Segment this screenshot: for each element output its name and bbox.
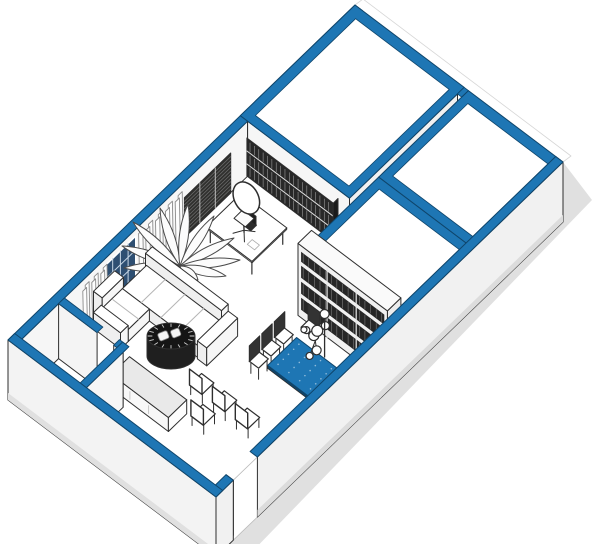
table-dot bbox=[304, 375, 306, 377]
table-dot bbox=[298, 343, 300, 345]
isometric-floorplan-stage bbox=[0, 0, 600, 544]
lamp-ball bbox=[320, 309, 329, 318]
decor-ball bbox=[321, 322, 329, 330]
table-dot bbox=[282, 359, 284, 361]
table-dot bbox=[331, 368, 333, 370]
table-dot bbox=[315, 383, 317, 385]
table-dot bbox=[315, 365, 317, 367]
table-dot bbox=[320, 378, 322, 380]
table-dot bbox=[310, 388, 312, 390]
decor-ball bbox=[301, 327, 307, 333]
table-dot bbox=[320, 360, 322, 362]
table-dot bbox=[325, 373, 327, 375]
table-dot bbox=[299, 362, 301, 364]
table-dot bbox=[293, 367, 295, 369]
table-dot bbox=[277, 364, 279, 366]
table-dot bbox=[299, 380, 301, 382]
table-dot bbox=[304, 357, 306, 359]
table-dot bbox=[288, 353, 290, 355]
table-dot bbox=[293, 348, 295, 350]
table-dot bbox=[288, 372, 290, 374]
drum-coffee-table bbox=[147, 323, 195, 369]
decor-ball bbox=[306, 352, 313, 359]
decor-ball bbox=[312, 346, 321, 355]
table-dot bbox=[309, 370, 311, 372]
floorplan-illustration bbox=[0, 0, 600, 544]
